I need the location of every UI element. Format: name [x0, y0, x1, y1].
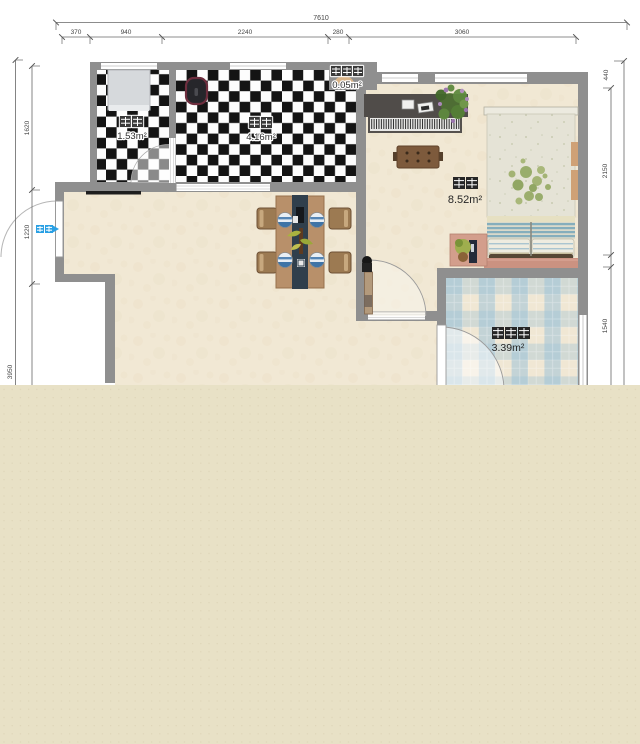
svg-text:3.39m²: 3.39m²: [492, 342, 525, 354]
svg-text:1620: 1620: [24, 120, 31, 135]
svg-text:8.52m²: 8.52m²: [448, 194, 483, 206]
svg-text:3950: 3950: [7, 364, 14, 379]
svg-text:940: 940: [121, 29, 132, 36]
svg-text:1540: 1540: [602, 318, 609, 333]
svg-text:370: 370: [71, 29, 82, 36]
svg-text:440: 440: [603, 69, 610, 80]
svg-text:2240: 2240: [238, 29, 253, 36]
svg-text:4.16m²: 4.16m²: [246, 132, 276, 143]
svg-text:1.53m²: 1.53m²: [117, 131, 147, 142]
svg-text:0.05m²: 0.05m²: [332, 80, 362, 91]
svg-text:1220: 1220: [24, 224, 31, 239]
svg-text:2150: 2150: [602, 163, 609, 178]
svg-text:7610: 7610: [313, 15, 329, 22]
svg-text:3060: 3060: [455, 29, 470, 36]
svg-text:280: 280: [333, 29, 344, 36]
